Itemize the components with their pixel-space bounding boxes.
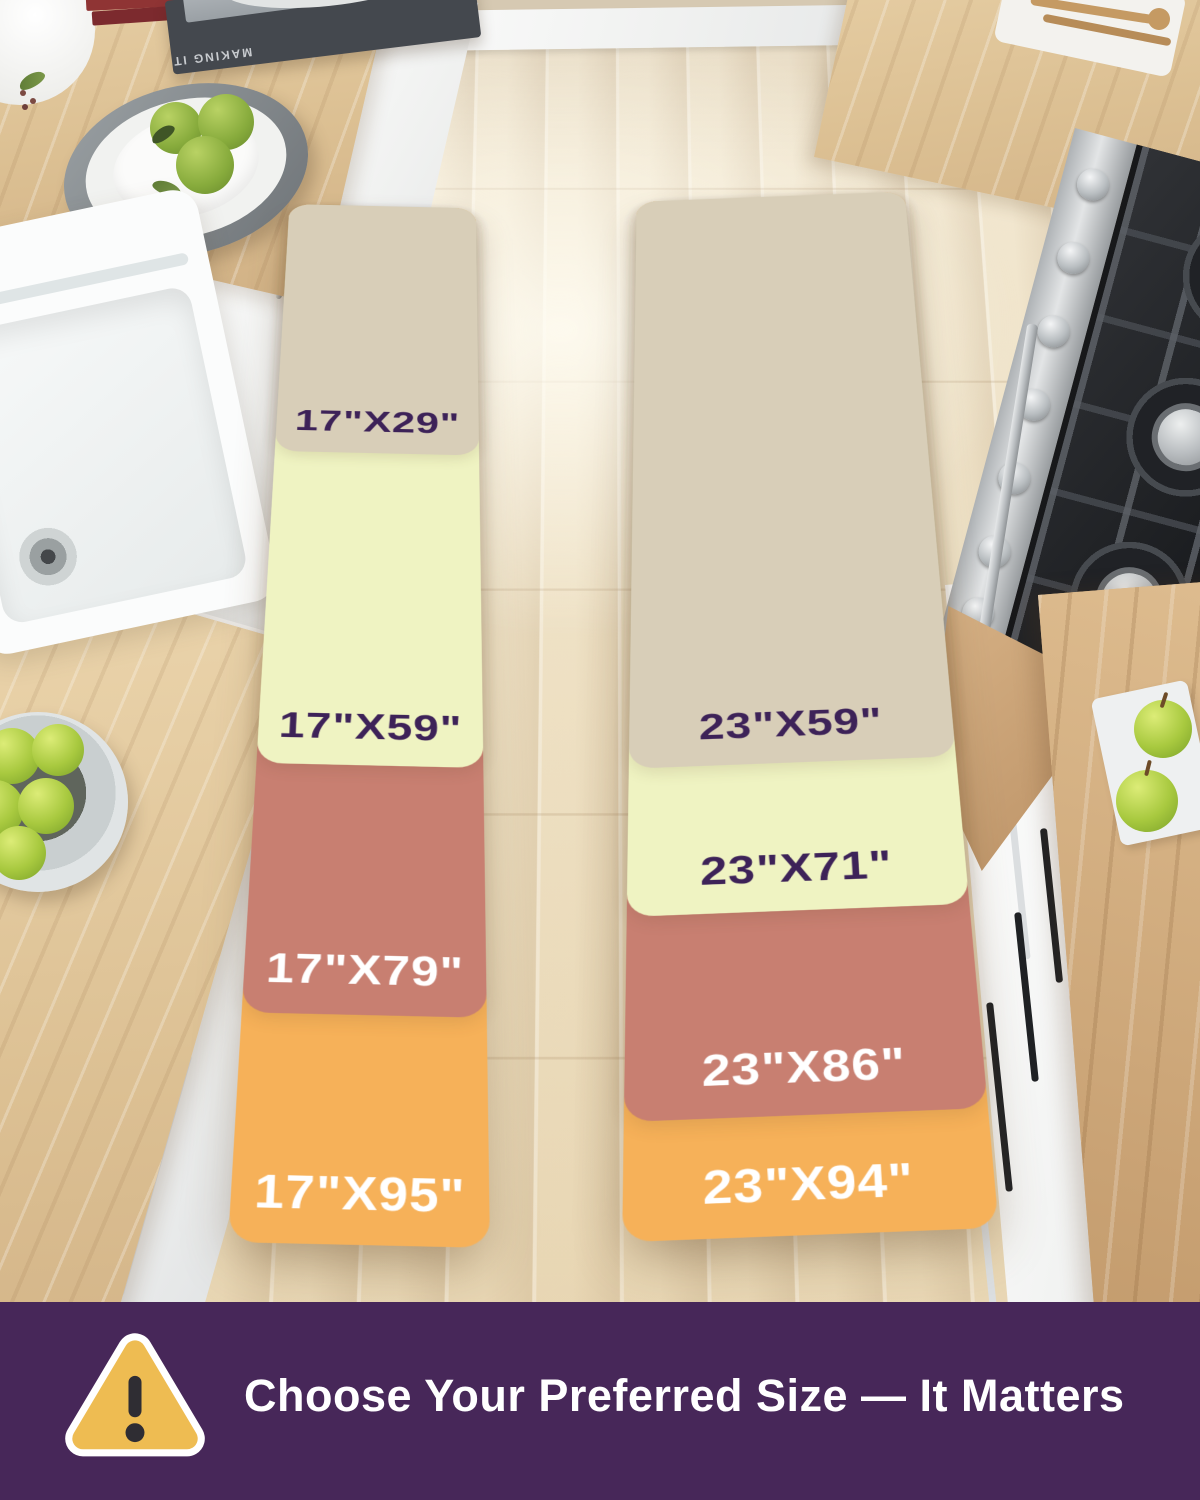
product-size-infographic: MAKING IT: [0, 0, 1200, 1500]
mat-size-label: 23"X86": [624, 1035, 986, 1100]
mat-size-label: 23"X94": [622, 1149, 996, 1218]
size-warning-banner: Choose Your Preferred Size — It Matters: [0, 1302, 1200, 1500]
banner-headline: Choose Your Preferred Size — It Matters: [244, 1370, 1125, 1422]
peppercorns: [20, 90, 26, 96]
green-apple: [18, 778, 74, 834]
mat-23x59: 23"X59": [629, 192, 956, 769]
mat-size-label: 23"X71": [627, 838, 968, 897]
spoon-head: [1148, 8, 1170, 30]
green-apple: [1116, 770, 1178, 832]
mat-size-label: 17"X79": [243, 943, 487, 997]
burner: [1150, 185, 1200, 369]
burner: [1094, 345, 1200, 529]
lime-fruit: [176, 136, 234, 194]
green-apple: [32, 724, 84, 776]
mat-size-label: 17"X95": [229, 1163, 489, 1224]
warning-triangle-icon: [64, 1332, 206, 1460]
mat-size-label: 23"X59": [629, 697, 954, 751]
kitchen-scene: MAKING IT: [0, 0, 1200, 1302]
mat-size-label: 17"X59": [257, 703, 483, 750]
mat-size-label: 17"X29": [276, 403, 479, 441]
mat-17x29: 17"X29": [275, 204, 479, 456]
burner-cap: [1144, 396, 1200, 479]
green-apple: [1134, 700, 1192, 758]
